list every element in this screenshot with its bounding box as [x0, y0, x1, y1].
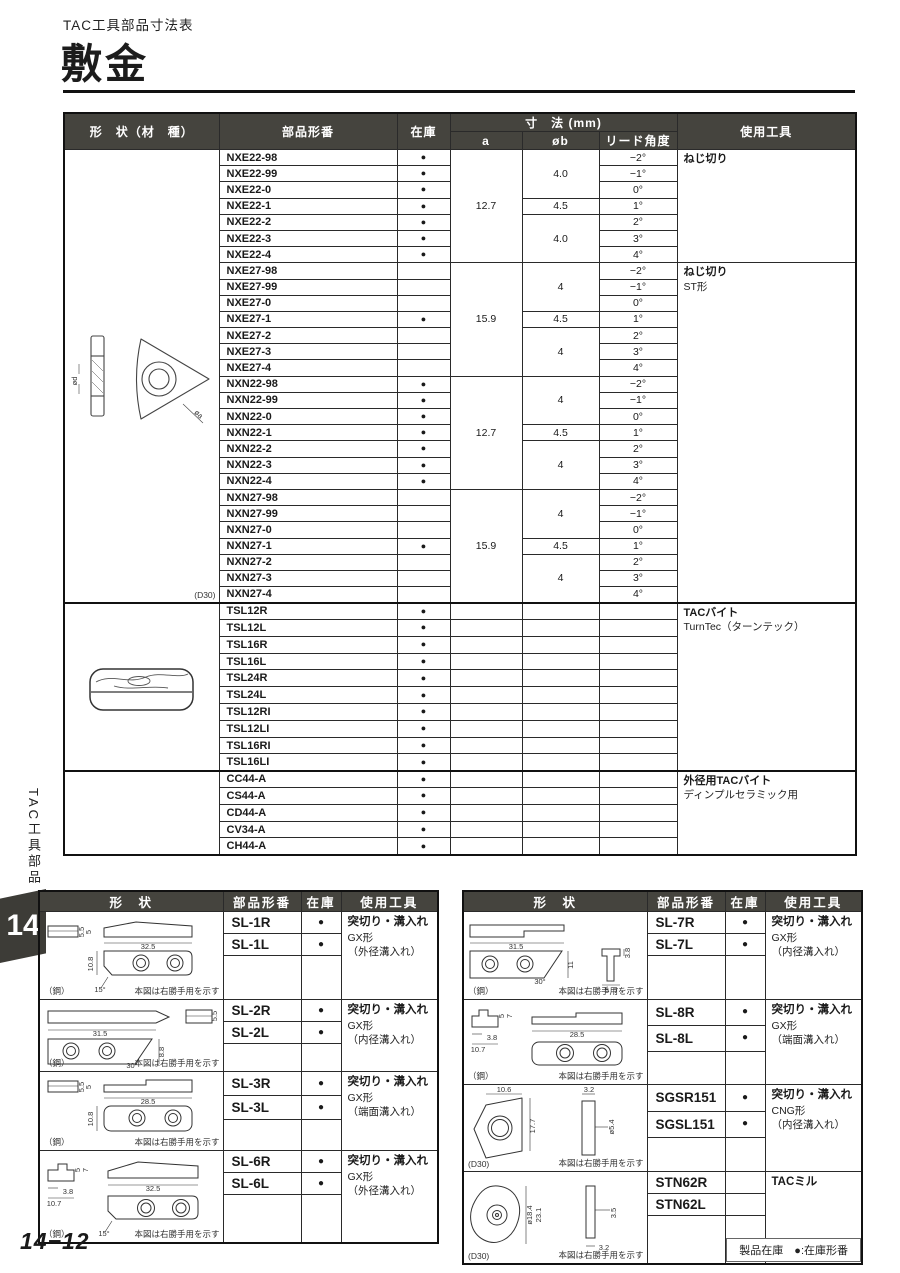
tool-usage-cell: 突切り・溝入れGX形（外径溝入れ） [341, 912, 438, 1000]
part-number-cell: SL-8R [647, 1000, 725, 1026]
tool-usage-line: GX形 [772, 1019, 856, 1034]
stock-cell: ● [301, 934, 341, 956]
lead-angle-cell [599, 687, 677, 704]
dim-b-cell [522, 788, 599, 805]
stock-cell: ● [397, 838, 450, 855]
col-part: 部品形番 [647, 891, 725, 912]
dim-b-cell: 4.5 [522, 538, 599, 554]
side-chapter-label: TAC工具部品 [24, 788, 43, 886]
tool-usage-line: GX形 [348, 931, 432, 946]
shape-cell: 10.617.73.2ø5.4(D30)本図は右勝手用を示す [463, 1085, 647, 1172]
stock-cell: ● [397, 150, 450, 166]
part-number-cell: TSL16RI [219, 737, 397, 754]
tool-usage-line: CNG形 [772, 1104, 856, 1119]
lead-angle-cell [599, 653, 677, 670]
part-number-cell: TSL24R [219, 670, 397, 687]
tool-usage-line: ディンプルセラミック用 [684, 788, 850, 802]
part-number-cell: CC44-A [219, 771, 397, 788]
tool-usage-line: GX形 [348, 1170, 432, 1185]
stock-cell: ● [397, 737, 450, 754]
part-number-cell: NXN27-2 [219, 554, 397, 570]
dim-b-cell [522, 670, 599, 687]
dim-a-cell [450, 754, 522, 771]
oval-shim-drawing [82, 655, 202, 719]
dim-label: 10.8 [86, 1112, 95, 1127]
dim-label: ød [70, 376, 79, 385]
dim-b-cell [522, 720, 599, 737]
tool-usage-line: 突切り・溝入れ [348, 915, 432, 931]
lead-angle-cell [599, 821, 677, 838]
bottom-table-row: 573.810.732.515°（鋼）本図は右勝手用を示すSL-6R●突切り・溝… [39, 1151, 438, 1173]
shape-cell: 31.51130°3.857（鋼）本図は右勝手用を示す [463, 912, 647, 1000]
dim-label: ø5.4 [607, 1119, 616, 1134]
tool-usage-line: 突切り・溝入れ [772, 1088, 856, 1104]
lead-angle-cell: 2° [599, 214, 677, 230]
part-number-cell: NXN27-1 [219, 538, 397, 554]
dim-label: øa [192, 408, 205, 421]
col-lead: リード角度 [599, 132, 677, 150]
stock-cell [397, 489, 450, 505]
material-label: (D30) [468, 1251, 489, 1261]
dim-label: 32.5 [146, 1184, 161, 1193]
part-number-cell: NXN27-98 [219, 489, 397, 505]
part-number-cell: NXN27-3 [219, 570, 397, 586]
shape-cell: 5.5532.510.815°（鋼）本図は右勝手用を示す [39, 912, 223, 1000]
tool-usage-cell: TACバイトTurnTec（ターンテック） [677, 603, 856, 771]
hand-note: 本図は右勝手用を示す [558, 1070, 643, 1082]
lead-angle-cell: 0° [599, 522, 677, 538]
part-number-cell: NXE22-2 [219, 214, 397, 230]
dim-label: 17.7 [528, 1119, 537, 1134]
part-number-cell: SL-3R [223, 1072, 301, 1096]
hand-note: 本図は右勝手用を示す [134, 985, 219, 997]
stock-cell [397, 344, 450, 360]
part-number-cell: STN62R [647, 1172, 725, 1194]
dim-label: 23.1 [534, 1208, 543, 1223]
part-number-cell: CV34-A [219, 821, 397, 838]
bottom-table-row: 5.5528.510.8（鋼）本図は右勝手用を示すSL-3R●突切り・溝入れGX… [39, 1072, 438, 1096]
part-number-cell: TSL16R [219, 636, 397, 653]
stock-cell: ● [397, 653, 450, 670]
dim-a-cell [450, 771, 522, 788]
dim-b-cell [522, 737, 599, 754]
part-number-cell: CD44-A [219, 804, 397, 821]
dim-b-cell: 4 [522, 376, 599, 425]
part-number-cell: NXE22-0 [219, 182, 397, 198]
stock-legend: 製品在庫 ●:在庫形番 [726, 1238, 861, 1262]
dim-label: 10.8 [86, 956, 95, 971]
dim-b-cell: 4 [522, 554, 599, 603]
part-number-cell: NXN22-0 [219, 409, 397, 425]
material-label: （鋼） [44, 1057, 70, 1069]
material-label: （鋼） [468, 985, 494, 997]
dim-a-cell [450, 737, 522, 754]
part-number-cell: NXN22-1 [219, 425, 397, 441]
lead-angle-cell [599, 670, 677, 687]
stock-cell: ● [397, 214, 450, 230]
part-number-cell: CH44-A [219, 838, 397, 855]
shape-cell [64, 771, 219, 855]
stock-cell: ● [301, 1022, 341, 1044]
tool-usage-line: （端面溝入れ） [348, 1105, 432, 1120]
stock-cell: ● [725, 1085, 765, 1112]
dim-label: 3.8 [623, 947, 632, 957]
bottom-left-body: 5.5532.510.815°（鋼）本図は右勝手用を示すSL-1R●突切り・溝入… [39, 912, 438, 1243]
part-number-cell: NXN22-4 [219, 473, 397, 489]
stock-cell: ● [397, 425, 450, 441]
dim-label: 10.7 [47, 1199, 62, 1208]
dim-label: 3.8 [63, 1187, 73, 1196]
stock-cell [725, 956, 765, 1000]
part-number-cell [647, 1051, 725, 1084]
stock-cell: ● [301, 1000, 341, 1022]
stock-cell [397, 570, 450, 586]
part-number-cell: NXN27-0 [219, 522, 397, 538]
tool-usage-cell: ねじ切り [677, 150, 856, 263]
col-tool: 使用工具 [677, 113, 856, 150]
dim-b-cell: 4.0 [522, 150, 599, 199]
tool-usage-cell: 突切り・溝入れGX形（内径溝入れ） [765, 912, 862, 1000]
dim-label: 32.5 [141, 942, 156, 951]
hand-note: 本図は右勝手用を示す [134, 1228, 219, 1240]
lead-angle-cell: −2° [599, 376, 677, 392]
sl7-drawing: 31.51130°3.857 [464, 917, 647, 995]
bottom-table-row: 10.617.73.2ø5.4(D30)本図は右勝手用を示すSGSR151●突切… [463, 1085, 862, 1112]
stock-cell: ● [397, 311, 450, 327]
part-number-cell: NXE27-1 [219, 311, 397, 327]
part-number-cell: SL-1L [223, 934, 301, 956]
tool-usage-line: GX形 [348, 1019, 432, 1034]
lead-angle-cell [599, 804, 677, 821]
col-tool: 使用工具 [341, 891, 438, 912]
shape-cell: 5.5528.510.8（鋼）本図は右勝手用を示す [39, 1072, 223, 1151]
bottom-right-body: 31.51130°3.857（鋼）本図は右勝手用を示すSL-7R●突切り・溝入れ… [463, 912, 862, 1264]
tool-usage-line: GX形 [348, 1091, 432, 1106]
stock-cell: ● [725, 1111, 765, 1138]
tool-usage-line: ねじ切り [684, 265, 850, 279]
dim-a-cell [450, 687, 522, 704]
page-number: 14−12 [20, 1228, 90, 1255]
dim-a-cell [450, 821, 522, 838]
part-number-cell: NXN22-3 [219, 457, 397, 473]
part-number-cell [647, 1216, 725, 1264]
stock-cell: ● [397, 247, 450, 263]
part-number-cell: TSL16LI [219, 754, 397, 771]
tool-usage-line: （外径溝入れ） [348, 945, 432, 960]
lead-angle-cell: 2° [599, 441, 677, 457]
part-number-cell: SL-2L [223, 1022, 301, 1044]
tool-usage-line: （外径溝入れ） [348, 1184, 432, 1199]
stock-cell: ● [397, 376, 450, 392]
part-number-cell: SL-6R [223, 1151, 301, 1173]
dim-label: 7 [505, 1014, 514, 1018]
tool-usage-line: 突切り・溝入れ [348, 1075, 432, 1091]
part-number-cell: TSL12L [219, 620, 397, 637]
dim-label: 3.5 [609, 1208, 618, 1218]
lead-angle-cell [599, 838, 677, 855]
part-number-cell: STN62L [647, 1194, 725, 1216]
shape-cell [64, 603, 219, 771]
part-number-cell: SL-1R [223, 912, 301, 934]
dim-a-cell [450, 704, 522, 721]
lead-angle-cell: 2° [599, 554, 677, 570]
tool-usage-cell: 突切り・溝入れGX形（端面溝入れ） [341, 1072, 438, 1151]
shape-cell: 573.810.728.5（鋼）本図は右勝手用を示す [463, 1000, 647, 1085]
tool-usage-line: 突切り・溝入れ [772, 1003, 856, 1019]
part-number-cell: NXE22-98 [219, 150, 397, 166]
part-number-cell: NXN22-99 [219, 392, 397, 408]
lead-angle-cell: 4° [599, 247, 677, 263]
stock-cell: ● [725, 934, 765, 956]
dim-a-cell [450, 838, 522, 855]
part-number-cell: NXE22-4 [219, 247, 397, 263]
lead-angle-cell [599, 704, 677, 721]
part-number-cell: SL-7R [647, 912, 725, 934]
stock-cell: ● [397, 166, 450, 182]
part-number-cell: NXN27-4 [219, 587, 397, 603]
main-table-body: ødøa(D30)NXE22-98●12.74.0−2°ねじ切りNXE22-99… [64, 150, 856, 855]
stock-cell: ● [301, 1072, 341, 1096]
part-number-cell: TSL12R [219, 603, 397, 620]
tool-usage-line: 突切り・溝入れ [348, 1154, 432, 1170]
tool-usage-line: ねじ切り [684, 152, 850, 166]
lead-angle-cell [599, 771, 677, 788]
bottom-table-row: 31.51130°3.857（鋼）本図は右勝手用を示すSL-7R●突切り・溝入れ… [463, 912, 862, 934]
page-title: 敷金 [61, 30, 149, 90]
stock-cell [397, 263, 450, 279]
lead-angle-cell: 3° [599, 570, 677, 586]
part-number-cell: TSL12LI [219, 720, 397, 737]
col-b: øb [522, 132, 599, 150]
stock-cell: ● [397, 620, 450, 637]
part-number-cell: NXN22-98 [219, 376, 397, 392]
part-number-cell [647, 956, 725, 1000]
part-number-cell: NXN27-99 [219, 506, 397, 522]
col-tool: 使用工具 [765, 891, 862, 912]
shape-material-note: (D30) [194, 590, 215, 600]
stock-cell: ● [397, 603, 450, 620]
shape-cell: 31.55.58.830°（鋼）本図は右勝手用を示す [39, 1000, 223, 1072]
stn-drawing: ø18.423.13.53.2 [464, 1178, 647, 1256]
lead-angle-cell: 3° [599, 230, 677, 246]
sl6-drawing: 573.810.732.515° [40, 1154, 223, 1238]
col-dims-group: 寸 法 (mm) [450, 113, 677, 132]
tool-usage-line: TACミル [772, 1175, 856, 1191]
part-number-cell [647, 1138, 725, 1172]
part-number-cell [223, 1195, 301, 1243]
stock-cell: ● [397, 392, 450, 408]
sl1-drawing: 5.5532.510.815° [40, 917, 223, 995]
part-number-cell: NXE22-3 [219, 230, 397, 246]
part-number-cell: SGSR151 [647, 1085, 725, 1112]
main-table-row: ødøa(D30)NXE22-98●12.74.0−2°ねじ切り [64, 150, 856, 166]
lead-angle-cell: 4° [599, 473, 677, 489]
tool-usage-cell: ねじ切りST形 [677, 263, 856, 603]
stock-cell: ● [725, 1025, 765, 1051]
dim-b-cell [522, 636, 599, 653]
stock-cell: ● [397, 804, 450, 821]
tool-usage-cell: 突切り・溝入れGX形（外径溝入れ） [341, 1151, 438, 1243]
lead-angle-cell: 1° [599, 198, 677, 214]
lead-angle-cell: −1° [599, 166, 677, 182]
col-part: 部品形番 [223, 891, 301, 912]
dim-b-cell [522, 620, 599, 637]
stock-cell [397, 295, 450, 311]
bottom-table-row: 573.810.728.5（鋼）本図は右勝手用を示すSL-8R●突切り・溝入れG… [463, 1000, 862, 1026]
tool-usage-line: 外径用TACバイト [684, 774, 850, 788]
stock-cell: ● [397, 230, 450, 246]
tool-usage-line: （端面溝入れ） [772, 1033, 856, 1048]
col-part: 部品形番 [219, 113, 397, 150]
lead-angle-cell: 4° [599, 360, 677, 376]
stock-cell: ● [397, 754, 450, 771]
dim-a-cell: 15.9 [450, 263, 522, 376]
lead-angle-cell: 3° [599, 457, 677, 473]
col-stock: 在庫 [397, 113, 450, 150]
bottom-table-row: 31.55.58.830°（鋼）本図は右勝手用を示すSL-2R●突切り・溝入れG… [39, 1000, 438, 1022]
stock-cell [397, 328, 450, 344]
part-number-cell: SGSL151 [647, 1111, 725, 1138]
part-number-cell [223, 1044, 301, 1072]
part-number-cell: NXE27-4 [219, 360, 397, 376]
stock-cell [301, 1195, 341, 1243]
bottom-table-row: 5.5532.510.815°（鋼）本図は右勝手用を示すSL-1R●突切り・溝入… [39, 912, 438, 934]
dim-label: 10.7 [471, 1045, 486, 1054]
part-number-cell: NXE27-98 [219, 263, 397, 279]
dim-b-cell: 4.5 [522, 198, 599, 214]
tool-usage-line: TurnTec（ターンテック） [684, 620, 850, 634]
hand-note: 本図は右勝手用を示す [558, 985, 643, 997]
dim-label: 5.5 [210, 1010, 219, 1020]
dim-b-cell: 4.5 [522, 425, 599, 441]
material-label: (D30) [468, 1159, 489, 1169]
dim-label: 30° [534, 977, 545, 986]
dim-label: 5 [84, 929, 93, 933]
lead-angle-cell: 0° [599, 182, 677, 198]
dim-label: 7 [81, 1168, 90, 1172]
hand-note: 本図は右勝手用を示す [558, 1249, 643, 1261]
tool-usage-cell: 外径用TACバイトディンプルセラミック用 [677, 771, 856, 855]
main-table-row: CC44-A●外径用TACバイトディンプルセラミック用 [64, 771, 856, 788]
col-shape: 形 状 [463, 891, 647, 912]
hand-note: 本図は右勝手用を示す [134, 1057, 219, 1069]
lead-angle-cell [599, 603, 677, 620]
material-label: （鋼） [468, 1070, 494, 1082]
dim-b-cell: 4.0 [522, 214, 599, 263]
part-number-cell: NXE27-3 [219, 344, 397, 360]
part-number-cell: CS44-A [219, 788, 397, 805]
dim-a-cell [450, 720, 522, 737]
tool-usage-line: （内径溝入れ） [772, 945, 856, 960]
tool-usage-cell: 突切り・溝入れGX形（内径溝入れ） [341, 1000, 438, 1072]
lead-angle-cell [599, 788, 677, 805]
stock-cell: ● [397, 441, 450, 457]
stock-cell [397, 506, 450, 522]
lead-angle-cell: 1° [599, 425, 677, 441]
dim-b-cell [522, 754, 599, 771]
stock-cell: ● [301, 1151, 341, 1173]
stock-cell: ● [725, 912, 765, 934]
part-number-cell [223, 1120, 301, 1151]
stock-cell [725, 1138, 765, 1172]
tool-usage-line: GX形 [772, 931, 856, 946]
part-number-cell: SL-2R [223, 1000, 301, 1022]
lead-angle-cell [599, 620, 677, 637]
tool-usage-line: 突切り・溝入れ [348, 1003, 432, 1019]
bottom-left-table: 形 状 部品形番 在庫 使用工具 5.5532.510.815°（鋼）本図は右勝… [38, 890, 439, 1244]
dim-a-cell: 12.7 [450, 376, 522, 489]
part-number-cell: NXE27-0 [219, 295, 397, 311]
lead-angle-cell [599, 737, 677, 754]
lead-angle-cell: 0° [599, 295, 677, 311]
part-number-cell: NXE22-99 [219, 166, 397, 182]
stock-cell: ● [397, 687, 450, 704]
stock-cell: ● [397, 457, 450, 473]
tool-usage-cell: 突切り・溝入れCNG形（内径溝入れ） [765, 1085, 862, 1172]
stock-cell: ● [301, 1096, 341, 1120]
dim-a-cell: 12.7 [450, 150, 522, 263]
col-stock: 在庫 [725, 891, 765, 912]
dim-a-cell [450, 603, 522, 620]
bottom-right-header: 形 状 部品形番 在庫 使用工具 [463, 891, 862, 912]
col-shape: 形 状（材 種） [64, 113, 219, 150]
dim-a-cell [450, 653, 522, 670]
stock-cell: ● [397, 720, 450, 737]
part-number-cell: TSL24L [219, 687, 397, 704]
tool-usage-line: ST形 [684, 280, 850, 294]
col-shape: 形 状 [39, 891, 223, 912]
dim-b-cell: 4.5 [522, 311, 599, 327]
col-stock: 在庫 [301, 891, 341, 912]
stock-cell: ● [397, 409, 450, 425]
tool-usage-line: TACバイト [684, 606, 850, 620]
dim-a-cell [450, 670, 522, 687]
main-table-header: 形 状（材 種） 部品形番 在庫 寸 法 (mm) 使用工具 a øb リード角… [64, 113, 856, 150]
part-number-cell [223, 956, 301, 1000]
stock-cell [397, 554, 450, 570]
lead-angle-cell: −2° [599, 263, 677, 279]
col-a: a [450, 132, 522, 150]
dim-b-cell [522, 653, 599, 670]
part-number-cell: TSL12RI [219, 704, 397, 721]
lead-angle-cell [599, 720, 677, 737]
stock-cell: ● [397, 704, 450, 721]
stock-cell [725, 1194, 765, 1216]
dim-label: 10.6 [497, 1085, 512, 1094]
dim-b-cell: 4 [522, 328, 599, 377]
lead-angle-cell: −1° [599, 392, 677, 408]
stock-cell: ● [397, 771, 450, 788]
stock-cell [301, 1120, 341, 1151]
dim-label: 28.5 [570, 1030, 585, 1039]
stock-cell: ● [725, 1000, 765, 1026]
stock-cell [397, 360, 450, 376]
stock-cell: ● [301, 912, 341, 934]
lead-angle-cell: 1° [599, 538, 677, 554]
main-dimension-table: 形 状（材 種） 部品形番 在庫 寸 法 (mm) 使用工具 a øb リード角… [63, 112, 857, 856]
stock-cell [725, 1051, 765, 1084]
part-number-cell: SL-8L [647, 1025, 725, 1051]
dim-b-cell [522, 838, 599, 855]
dim-a-cell [450, 620, 522, 637]
dim-label: 11 [566, 961, 575, 969]
bottom-right-table: 形 状 部品形番 在庫 使用工具 31.51130°3.857（鋼）本図は右勝手… [462, 890, 863, 1265]
lead-angle-cell: −2° [599, 489, 677, 505]
lead-angle-cell: −1° [599, 279, 677, 295]
dim-label: 5 [84, 1085, 93, 1089]
main-table-row: TSL12R●TACバイトTurnTec（ターンテック） [64, 603, 856, 620]
dim-b-cell [522, 704, 599, 721]
